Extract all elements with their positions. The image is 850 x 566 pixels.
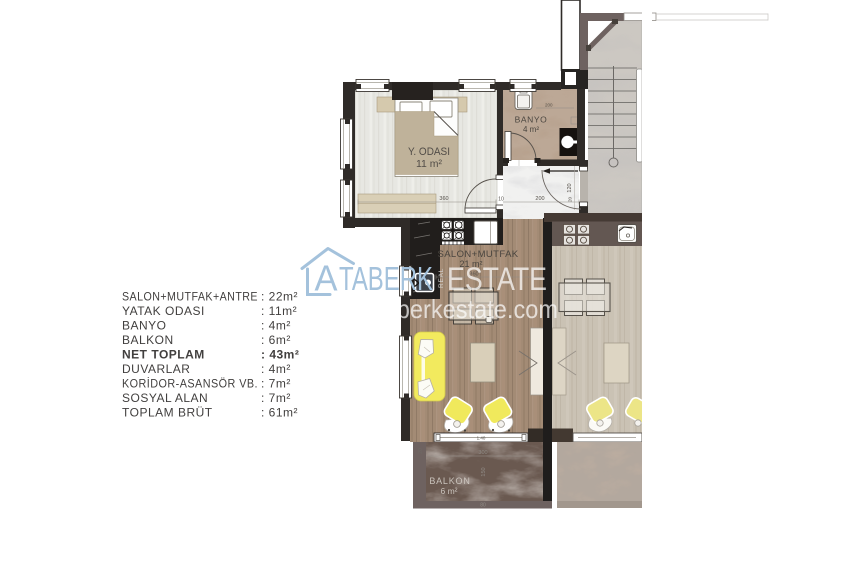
svg-text:A: A (315, 258, 338, 299)
svg-text:: 4m²: : 4m² (261, 362, 291, 376)
svg-text:SOSYAL ALAN: SOSYAL ALAN (122, 391, 208, 405)
svg-text:REAL: REAL (438, 268, 445, 288)
svg-text:20: 20 (418, 448, 424, 454)
svg-text:SALON+MUTFAK+ANTRE: SALON+MUTFAK+ANTRE (122, 290, 258, 304)
svg-text:TABERK: TABERK (339, 260, 433, 297)
svg-text:120: 120 (567, 183, 573, 192)
svg-text:300: 300 (478, 450, 487, 456)
svg-text:ataberkestate.com: ataberkestate.com (364, 294, 558, 324)
svg-text:TOPLAM BRÜT: TOPLAM BRÜT (122, 406, 213, 420)
svg-text:: 61m²: : 61m² (261, 406, 298, 420)
svg-text:KORİDOR-ASANSÖR VB.: KORİDOR-ASANSÖR VB. (122, 377, 258, 391)
svg-text:Y. ODASI: Y. ODASI (408, 146, 450, 158)
svg-text:ESTATE: ESTATE (447, 261, 547, 297)
svg-text:: 7m²: : 7m² (261, 377, 291, 391)
svg-text:20: 20 (568, 197, 573, 203)
svg-text:6 m²: 6 m² (441, 486, 458, 496)
svg-text:: 11m²: : 11m² (261, 304, 297, 318)
svg-text:10: 10 (498, 197, 504, 203)
svg-text:BALKON: BALKON (429, 476, 470, 486)
svg-text:YATAK ODASI: YATAK ODASI (122, 304, 205, 318)
svg-text:1.40: 1.40 (477, 436, 486, 441)
svg-text:NET TOPLAM: NET TOPLAM (122, 348, 205, 362)
svg-text:: 4m²: : 4m² (261, 319, 291, 333)
svg-text:BANYO: BANYO (122, 319, 167, 333)
svg-text:DUVARLAR: DUVARLAR (122, 362, 190, 376)
svg-text:80: 80 (480, 503, 486, 509)
svg-text:360: 360 (439, 196, 448, 202)
svg-text:BANYO: BANYO (515, 115, 548, 125)
svg-text:: 22m²: : 22m² (261, 290, 298, 304)
svg-text:4 m²: 4 m² (523, 125, 539, 134)
svg-text:200: 200 (545, 103, 553, 108)
svg-text:: 6m²: : 6m² (261, 333, 291, 347)
svg-text:: 7m²: : 7m² (261, 391, 291, 405)
svg-text:150: 150 (481, 467, 487, 476)
svg-text:BALKON: BALKON (122, 333, 174, 347)
svg-text:11 m²: 11 m² (416, 159, 443, 170)
svg-text:200: 200 (535, 196, 544, 202)
svg-text:: 43m²: : 43m² (261, 348, 299, 362)
